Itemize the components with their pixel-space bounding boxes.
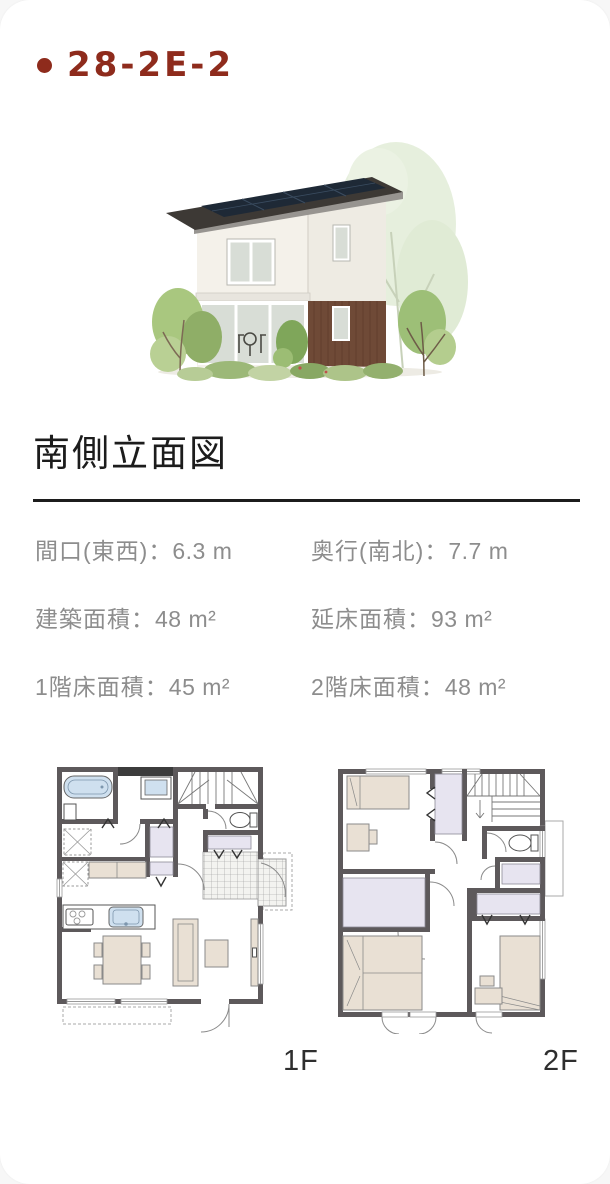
balcony-outline xyxy=(545,821,563,896)
genkan-tile xyxy=(203,852,258,899)
upper-window-right xyxy=(333,225,350,261)
main-bedroom xyxy=(343,936,422,1010)
toilet-1f xyxy=(208,811,257,829)
spec-depth: 奥行(南北)：7.7 m xyxy=(311,532,587,566)
walk-in-closet xyxy=(343,878,425,927)
living-room xyxy=(173,919,258,986)
floor-plans-row xyxy=(55,764,610,1039)
terrace-outline xyxy=(63,1007,171,1024)
plan-title-row: 28-2E-2 xyxy=(0,0,610,82)
spec-row: 間口(東西)：6.3 m 奥行(南北)：7.7 m xyxy=(35,532,610,566)
elevation-heading: 南側立面図 xyxy=(33,432,610,476)
bedroom1 xyxy=(347,776,409,851)
kitchen xyxy=(63,905,155,929)
stairs-1f xyxy=(178,772,258,804)
washbasin xyxy=(141,777,171,799)
closet-right-lower xyxy=(477,894,540,914)
spec-1f-area: 1階床面積：45 m² xyxy=(35,668,311,702)
sofa xyxy=(173,919,198,986)
page-title: 28-2E-2 xyxy=(67,48,234,82)
shoe-cabinet xyxy=(208,836,251,849)
bottom-door-arcs xyxy=(382,1017,492,1034)
bedroom3 xyxy=(475,936,540,1010)
dining-table xyxy=(103,936,141,984)
hall-closet xyxy=(150,827,173,857)
floorplan-1f xyxy=(55,764,295,1039)
stairs-2f xyxy=(467,774,540,822)
heading-divider xyxy=(33,499,580,502)
desk-1 xyxy=(347,824,369,851)
spec-table: 間口(東西)：6.3 m 奥行(南北)：7.7 m 建築面積：48 m² 延床面… xyxy=(35,532,610,702)
bathroom xyxy=(64,776,112,820)
toilet-2f xyxy=(487,833,538,852)
plan-labels: 1F 2F xyxy=(0,1045,610,1085)
desk-3 xyxy=(475,988,502,1004)
washroom-door-arc xyxy=(120,824,140,844)
hall-cabinet xyxy=(89,862,146,878)
spec-sheet-page: 28-2E-2 xyxy=(0,0,610,1184)
floor-label-2f: 2F xyxy=(543,1045,579,1078)
spec-2f-area: 2階床面積：48 m² xyxy=(311,668,587,702)
single-bed-3 xyxy=(500,936,540,1010)
floorplan-2f xyxy=(330,764,585,1034)
upper-window-left xyxy=(227,239,275,285)
spec-frontage: 間口(東西)：6.3 m xyxy=(35,532,311,566)
house-illustration-svg xyxy=(140,132,470,407)
living-door-out-arc xyxy=(201,1004,229,1032)
spec-row: 建築面積：48 m² 延床面積：93 m² xyxy=(35,600,610,634)
living-door-arc xyxy=(178,864,204,890)
bullet-icon xyxy=(37,58,52,73)
coffee-table xyxy=(205,940,228,967)
spec-building-area: 建築面積：48 m² xyxy=(35,600,311,634)
closet-top xyxy=(435,774,462,834)
hall-closet-small xyxy=(150,862,173,875)
bedroom1-door-arc xyxy=(435,842,457,864)
siding-window xyxy=(333,307,349,340)
dining-set xyxy=(94,936,150,984)
house-illustration xyxy=(140,132,470,412)
spec-row: 1階床面積：45 m² 2階床面積：48 m² xyxy=(35,668,610,702)
wood-siding xyxy=(308,301,386,367)
spec-total-floor-area: 延床面積：93 m² xyxy=(311,600,587,634)
floor-label-1f: 1F xyxy=(283,1045,319,1078)
wic-door-arc xyxy=(430,882,454,906)
lintel xyxy=(118,767,175,776)
bathtub xyxy=(64,776,112,798)
porch-tile xyxy=(258,859,286,906)
closet-right-upper xyxy=(502,864,540,884)
